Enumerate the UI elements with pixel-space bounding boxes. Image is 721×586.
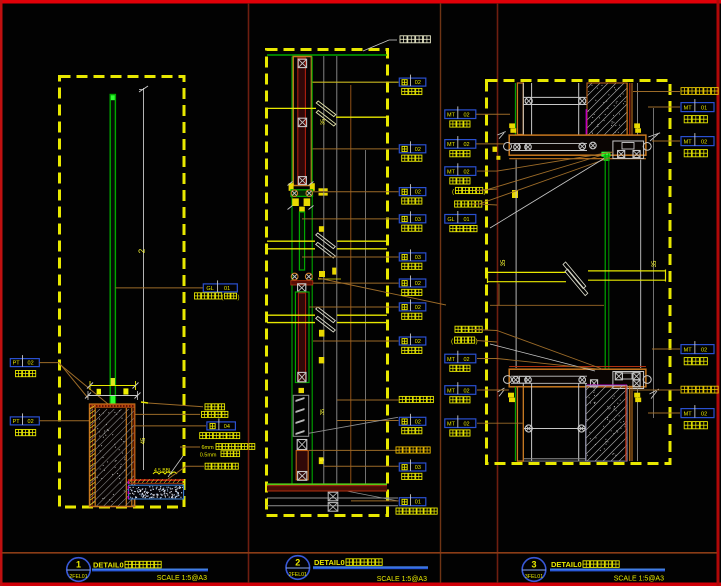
svg-text:04: 04 bbox=[224, 424, 230, 430]
svg-text:DETAIL0: DETAIL0 bbox=[314, 558, 345, 567]
svg-text:1: 1 bbox=[76, 560, 81, 570]
svg-text:45: 45 bbox=[141, 437, 147, 444]
svg-text:2: 2 bbox=[295, 558, 300, 568]
svg-text:SCALE 1:5@A3: SCALE 1:5@A3 bbox=[614, 576, 664, 583]
svg-text:02: 02 bbox=[701, 140, 707, 146]
svg-text:03: 03 bbox=[415, 465, 421, 471]
svg-text:DETAIL0: DETAIL0 bbox=[551, 560, 582, 569]
svg-text:6mm: 6mm bbox=[202, 445, 215, 451]
svg-text:MT: MT bbox=[684, 140, 693, 146]
svg-text:01: 01 bbox=[463, 217, 469, 223]
svg-text:02: 02 bbox=[463, 357, 469, 363]
svg-text:3FEL01: 3FEL01 bbox=[525, 574, 543, 580]
svg-text:): ) bbox=[238, 295, 240, 301]
svg-text:2FEL01: 2FEL01 bbox=[69, 574, 87, 580]
svg-text:MT: MT bbox=[684, 348, 693, 354]
svg-text:3: 3 bbox=[531, 560, 536, 570]
svg-text:02: 02 bbox=[28, 361, 34, 367]
svg-text:02: 02 bbox=[463, 388, 469, 394]
svg-text:MT: MT bbox=[447, 422, 456, 428]
svg-text:02: 02 bbox=[415, 281, 421, 287]
svg-text:02: 02 bbox=[701, 412, 707, 418]
svg-text:01: 01 bbox=[415, 500, 421, 506]
svg-text:03: 03 bbox=[415, 217, 421, 223]
svg-text:35: 35 bbox=[320, 409, 326, 415]
svg-text:MT: MT bbox=[684, 412, 693, 418]
svg-text:02: 02 bbox=[415, 190, 421, 196]
svg-text:4.5 BBL: 4.5 BBL bbox=[154, 468, 172, 474]
svg-text:02: 02 bbox=[415, 339, 421, 345]
svg-text:0.5mm: 0.5mm bbox=[200, 452, 217, 458]
svg-text:02: 02 bbox=[463, 142, 469, 148]
svg-text:02: 02 bbox=[463, 422, 469, 428]
svg-text:35: 35 bbox=[652, 260, 658, 267]
svg-text:02: 02 bbox=[415, 80, 421, 86]
svg-text:2FEL01: 2FEL01 bbox=[289, 572, 307, 578]
svg-text:PT: PT bbox=[13, 361, 21, 367]
svg-text:02: 02 bbox=[415, 419, 421, 425]
svg-text:02: 02 bbox=[28, 419, 34, 425]
svg-text:01: 01 bbox=[224, 286, 230, 292]
svg-text:GL: GL bbox=[206, 286, 213, 292]
svg-text:02: 02 bbox=[415, 305, 421, 311]
svg-text:SCALE 1:5@A3: SCALE 1:5@A3 bbox=[377, 576, 427, 583]
svg-text:): ) bbox=[476, 338, 478, 345]
svg-text:GL: GL bbox=[447, 217, 454, 223]
svg-text:MT: MT bbox=[447, 357, 456, 363]
svg-text:02: 02 bbox=[701, 348, 707, 354]
svg-text:MT: MT bbox=[447, 388, 456, 394]
svg-text:PT: PT bbox=[13, 419, 21, 425]
svg-text:02: 02 bbox=[415, 147, 421, 153]
svg-text:MT: MT bbox=[684, 106, 693, 112]
svg-text:01: 01 bbox=[701, 106, 707, 112]
svg-text:02: 02 bbox=[463, 169, 469, 175]
svg-text:(: ( bbox=[222, 295, 224, 301]
svg-text:03: 03 bbox=[415, 255, 421, 261]
svg-text:02: 02 bbox=[463, 113, 469, 119]
svg-text:MT: MT bbox=[447, 169, 456, 175]
svg-text:5: 5 bbox=[320, 458, 326, 461]
svg-text:MT: MT bbox=[447, 142, 456, 148]
svg-text:MT: MT bbox=[447, 113, 456, 119]
svg-text:SCALE 1:5@A3: SCALE 1:5@A3 bbox=[157, 575, 207, 582]
svg-text:35: 35 bbox=[321, 119, 327, 125]
svg-text:2: 2 bbox=[138, 248, 147, 253]
svg-text:35: 35 bbox=[501, 259, 507, 266]
svg-text:DETAIL0: DETAIL0 bbox=[93, 561, 124, 570]
